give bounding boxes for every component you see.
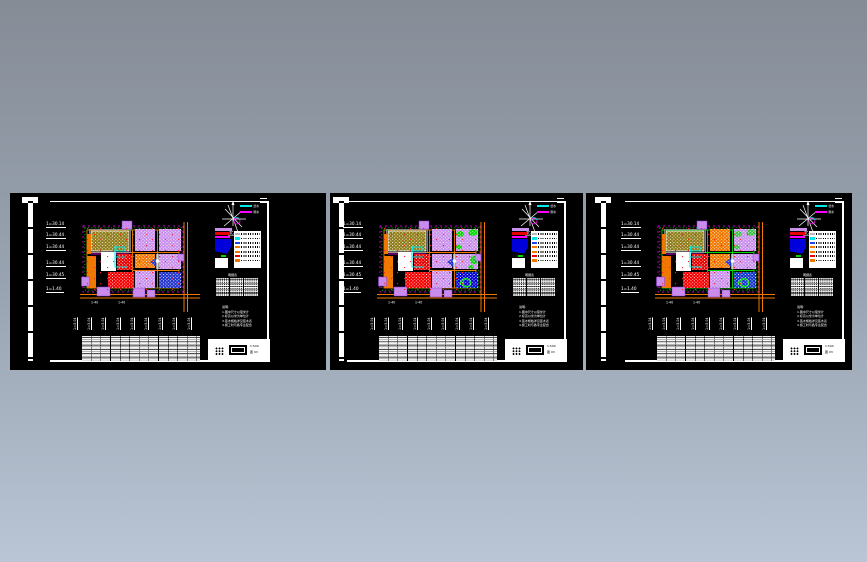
legend-entry-text (816, 246, 835, 248)
notes-block: 说明:1.图中尺寸以毫米计2.标高以米为单位计3.苗木规格详见苗木表4.施工时与… (797, 305, 837, 328)
line-label: 给水 (254, 204, 260, 208)
legend-double-dash (835, 198, 842, 203)
scale-label: 1=30.44 (621, 232, 641, 239)
vertical-label: 1=3.04 (370, 317, 374, 330)
legend-white-panel (512, 258, 525, 268)
legend-entry-text (538, 246, 557, 248)
vertical-label-row: 1=3.041=3.041=3.041=3.041=3.041=3.041=3.… (370, 302, 502, 332)
title-scale-text: 1:500 (547, 344, 556, 348)
legend-row (235, 258, 260, 262)
vertical-label: 1=3.04 (441, 317, 445, 330)
legend-white-panel (790, 258, 803, 268)
table-column-line (526, 278, 527, 296)
vertical-label-row: 1=3.041=3.041=3.041=3.041=3.041=3.041=3.… (73, 302, 205, 332)
cad-sheet-1[interactable]: 1=30.141=30.441=30.441=30.441=30.451=1.4… (10, 193, 326, 370)
legend-magenta-bar (790, 236, 805, 238)
note-line: 4.施工时与各专业配合 (519, 323, 559, 328)
stamp-inner (231, 347, 245, 353)
legend-color-swatch (532, 259, 537, 261)
frame-line-right (564, 201, 566, 361)
legend-entry-text (538, 238, 557, 240)
legend-color-swatch (235, 242, 240, 244)
legend-swatch-table (531, 231, 558, 268)
scale-label: 1=30.44 (46, 232, 66, 239)
sheet-content: 1=30.141=30.441=30.441=30.441=30.451=1.4… (333, 194, 578, 370)
legend-line-row: 给水 (815, 204, 845, 208)
vertical-label-row: 1=3.041=3.041=3.041=3.041=3.041=3.041=3.… (648, 302, 780, 332)
red-annotation-dots (380, 226, 480, 292)
material-table (216, 278, 258, 296)
frame-line-right (842, 201, 844, 361)
scale-label: 1=30.14 (343, 221, 363, 228)
title-scale-text: 1:500 (250, 344, 259, 348)
legend-entry-text (816, 260, 835, 262)
vertical-label: 1=3.04 (747, 317, 751, 330)
legend-row (532, 258, 557, 262)
vertical-label: 1=3.04 (705, 317, 709, 330)
legend-line-row: 雨水 (240, 210, 270, 214)
legend-entry-text (241, 242, 260, 244)
line-type-legend: 给水 雨水 (240, 204, 270, 216)
legend-entry-text (241, 246, 260, 248)
legend-entry-text (241, 233, 260, 235)
title-number-text: 图 03 (547, 350, 555, 354)
vertical-label: 1=3.04 (172, 317, 176, 330)
vertical-label: 1=3.04 (427, 317, 431, 330)
scale-label: 1=30.45 (621, 272, 641, 279)
scale-label: 1=30.44 (46, 244, 66, 251)
legend-violet-bar (512, 228, 529, 231)
legend-blue-blob (215, 239, 231, 254)
legend-block (215, 228, 261, 276)
material-table-title: 明细表 (228, 273, 237, 277)
site-plan: 1-40 1-40 (78, 210, 202, 314)
legend-red-bar (215, 232, 230, 234)
table-column-line (818, 278, 819, 296)
line-label: 雨水 (551, 210, 557, 214)
legend-entry-text (241, 238, 260, 240)
material-table (791, 278, 833, 296)
legend-color-swatch (532, 242, 537, 244)
legend-entry-text (538, 260, 557, 262)
legend-color-swatch (235, 237, 240, 239)
title-stamp (804, 345, 822, 355)
red-annotation-dots (658, 226, 758, 292)
legend-entry-text (538, 242, 557, 244)
legend-line-row: 雨水 (537, 210, 567, 214)
magenta-line-swatch (537, 211, 549, 213)
legend-color-swatch (235, 251, 240, 253)
legend-green-tick (518, 255, 523, 257)
scale-label-column: 1=30.141=30.441=30.441=30.441=30.451=1.4… (343, 218, 377, 302)
vertical-label: 1=3.04 (676, 317, 680, 330)
legend-swatch-table (234, 231, 261, 268)
cad-sheet-2[interactable]: 1=30.141=30.441=30.441=30.441=30.451=1.4… (330, 193, 583, 370)
plant-schedule-table (379, 335, 497, 361)
legend-color-swatch (532, 246, 537, 248)
cad-sheet-3[interactable]: 1=30.141=30.441=30.441=30.441=30.451=1.4… (586, 193, 852, 370)
table-column-line (243, 278, 244, 296)
title-block: 1:500 图 03 (208, 339, 270, 362)
legend-blue-blob (790, 239, 806, 254)
legend-entry-text (241, 260, 260, 262)
stamp-inner (528, 347, 542, 353)
note-line: 4.施工时与各专业配合 (797, 323, 837, 328)
scale-label: 1=30.14 (621, 221, 641, 228)
legend-color-swatch (810, 242, 815, 244)
legend-block (790, 228, 836, 276)
vertical-label: 1=3.04 (691, 317, 695, 330)
legend-red-bar (512, 232, 527, 234)
vertical-label: 1=3.04 (187, 317, 191, 330)
note-line: 4.施工时与各专业配合 (222, 323, 262, 328)
title-dots (790, 347, 799, 355)
vertical-label: 1=3.04 (762, 317, 766, 330)
line-label: 雨水 (829, 210, 835, 214)
legend-blue-blob (512, 239, 528, 254)
vertical-label: 1=3.04 (455, 317, 459, 330)
legend-color-swatch (810, 255, 815, 257)
title-scale-text: 1:500 (825, 344, 834, 348)
legend-color-swatch (235, 255, 240, 257)
vertical-label: 1=3.04 (73, 317, 77, 330)
legend-magenta-bar (215, 236, 230, 238)
line-type-legend: 给水 雨水 (815, 204, 845, 216)
red-annotation-dots (83, 226, 183, 292)
legend-entry-text (816, 242, 835, 244)
line-label: 给水 (551, 204, 557, 208)
legend-color-swatch (532, 237, 537, 239)
scale-label: 1=30.44 (46, 260, 66, 267)
legend-entry-text (538, 255, 557, 257)
line-label: 给水 (829, 204, 835, 208)
notes-block: 说明:1.图中尺寸以毫米计2.标高以米为单位计3.苗木规格详见苗木表4.施工时与… (519, 305, 559, 328)
vertical-label: 1=3.04 (158, 317, 162, 330)
stamp-inner (806, 347, 820, 353)
vertical-label: 1=3.04 (648, 317, 652, 330)
table-column-line (540, 278, 541, 296)
vertical-label: 1=3.04 (130, 317, 134, 330)
magenta-line-swatch (240, 211, 252, 213)
legend-entry-text (816, 238, 835, 240)
sheet-content: 1=30.141=30.441=30.441=30.441=30.451=1.4… (611, 194, 856, 370)
legend-color-swatch (532, 233, 537, 235)
scale-label: 1=1.40 (343, 286, 361, 293)
legend-entry-text (816, 255, 835, 257)
table-column-line (229, 278, 230, 296)
scale-label: 1=30.45 (46, 272, 66, 279)
legend-green-tick (796, 255, 801, 257)
vertical-label: 1=3.04 (719, 317, 723, 330)
scale-label: 1=30.14 (46, 221, 66, 228)
vertical-label: 1=3.04 (116, 317, 120, 330)
line-label: 雨水 (254, 210, 260, 214)
legend-violet-bar (790, 228, 807, 231)
scale-label: 1=30.44 (343, 244, 363, 251)
legend-color-swatch (810, 233, 815, 235)
legend-block (512, 228, 558, 276)
sheet-content: 1=30.141=30.441=30.441=30.441=30.451=1.4… (36, 194, 281, 370)
legend-entry-text (241, 251, 260, 253)
vertical-label: 1=3.04 (398, 317, 402, 330)
title-number-text: 图 03 (825, 350, 833, 354)
vertical-label: 1=3.04 (469, 317, 473, 330)
legend-line-row: 雨水 (815, 210, 845, 214)
vertical-label: 1=3.04 (384, 317, 388, 330)
legend-color-swatch (810, 251, 815, 253)
legend-color-swatch (810, 259, 815, 261)
title-stamp (526, 345, 544, 355)
vertical-label: 1=3.04 (484, 317, 488, 330)
title-stamp (229, 345, 247, 355)
vertical-label: 1=3.04 (144, 317, 148, 330)
site-plan: 1-40 1-40 (375, 210, 499, 314)
frame-line-right (267, 201, 269, 361)
legend-color-swatch (235, 259, 240, 261)
cyan-line-swatch (240, 205, 252, 207)
title-dots (215, 347, 224, 355)
material-table (513, 278, 555, 296)
line-type-legend: 给水 雨水 (537, 204, 567, 216)
vertical-label: 1=3.04 (87, 317, 91, 330)
title-block: 1:500 图 03 (783, 339, 845, 362)
binding-strip (28, 201, 33, 361)
legend-color-swatch (532, 255, 537, 257)
legend-magenta-bar (512, 236, 527, 238)
legend-color-swatch (810, 246, 815, 248)
vertical-label: 1=3.04 (413, 317, 417, 330)
magenta-line-swatch (815, 211, 827, 213)
cad-viewer-workspace: 1=30.141=30.441=30.441=30.441=30.451=1.4… (0, 0, 867, 562)
title-dots (512, 347, 521, 355)
plant-schedule-table (82, 335, 200, 361)
legend-entry-text (816, 233, 835, 235)
legend-color-swatch (810, 237, 815, 239)
legend-entry-text (538, 251, 557, 253)
material-table-title: 明细表 (803, 273, 812, 277)
scale-label: 1=30.44 (621, 260, 641, 267)
legend-line-row: 给水 (240, 204, 270, 208)
table-column-line (804, 278, 805, 296)
legend-swatch-table (809, 231, 836, 268)
cyan-line-swatch (537, 205, 549, 207)
binding-strip (601, 201, 606, 361)
legend-row (810, 258, 835, 262)
legend-double-dash (557, 198, 564, 203)
legend-entry-text (241, 255, 260, 257)
vertical-label: 1=3.04 (662, 317, 666, 330)
vertical-label: 1=3.04 (101, 317, 105, 330)
notes-block: 说明:1.图中尺寸以毫米计2.标高以米为单位计3.苗木规格详见苗木表4.施工时与… (222, 305, 262, 328)
plant-schedule-table (657, 335, 775, 361)
site-plan: 1-40 1-40 (653, 210, 777, 314)
scale-label: 1=1.40 (46, 286, 64, 293)
title-block: 1:500 图 03 (505, 339, 567, 362)
scale-label: 1=30.45 (343, 272, 363, 279)
vertical-label: 1=3.04 (733, 317, 737, 330)
legend-white-panel (215, 258, 228, 268)
legend-entry-text (816, 251, 835, 253)
legend-green-tick (221, 255, 226, 257)
scale-label: 1=30.44 (343, 232, 363, 239)
legend-color-swatch (235, 233, 240, 235)
scale-label: 1=30.44 (343, 260, 363, 267)
cyan-line-swatch (815, 205, 827, 207)
legend-violet-bar (215, 228, 232, 231)
legend-line-row: 给水 (537, 204, 567, 208)
legend-color-swatch (235, 246, 240, 248)
scale-label: 1=30.44 (621, 244, 641, 251)
scale-label: 1=1.40 (621, 286, 639, 293)
legend-color-swatch (532, 251, 537, 253)
scale-label-column: 1=30.141=30.441=30.441=30.441=30.451=1.4… (46, 218, 80, 302)
legend-red-bar (790, 232, 805, 234)
legend-double-dash (260, 198, 267, 203)
scale-label-column: 1=30.141=30.441=30.441=30.441=30.451=1.4… (621, 218, 655, 302)
material-table-title: 明细表 (525, 273, 534, 277)
title-number-text: 图 03 (250, 350, 258, 354)
legend-entry-text (538, 233, 557, 235)
